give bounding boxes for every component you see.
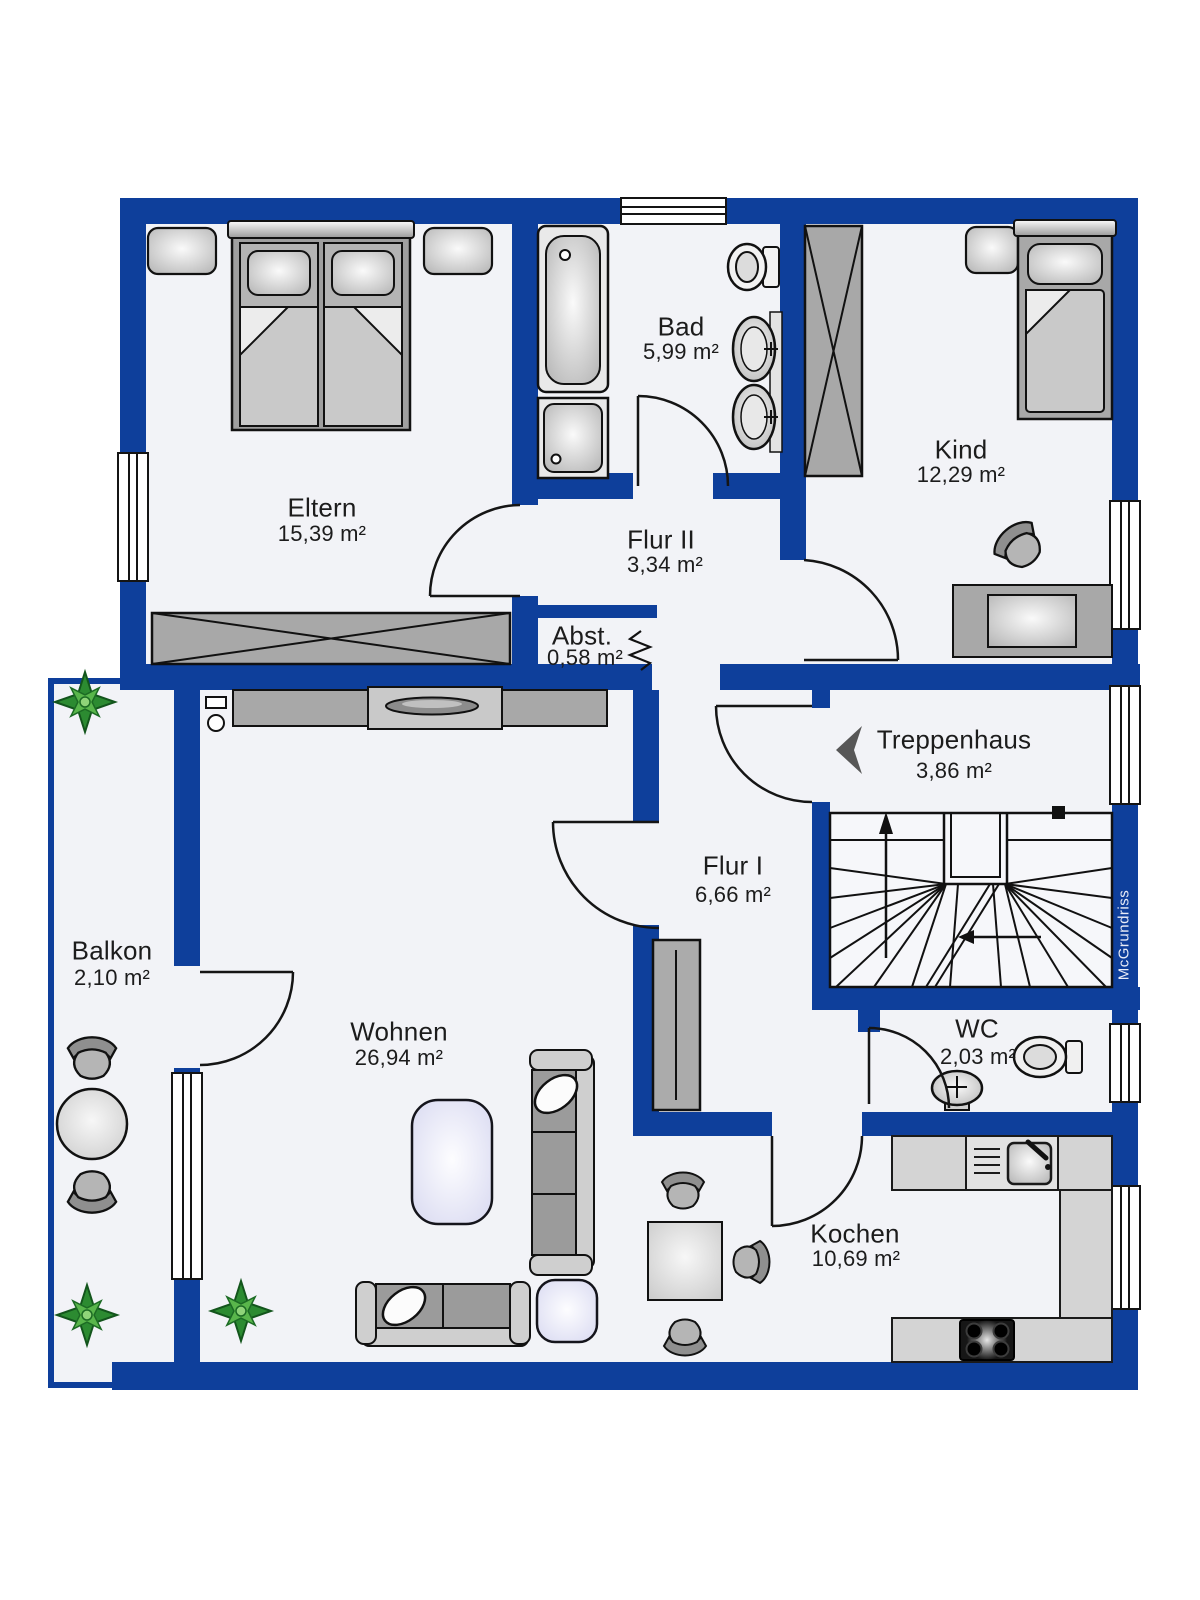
sideboard-tv-icon <box>206 687 607 731</box>
wc-sink-icon <box>932 1071 982 1110</box>
single-bed-icon <box>1014 220 1116 419</box>
sofa-horizontal-icon <box>356 1279 530 1346</box>
wardrobe-kind-icon <box>805 226 862 476</box>
desk-icon <box>953 585 1112 657</box>
staircase-icon <box>830 806 1112 987</box>
nightstand-icon <box>966 227 1018 273</box>
room-label-kind-name: Kind <box>935 435 988 466</box>
door-eltern <box>430 505 520 596</box>
plant-icon <box>57 1285 117 1345</box>
wardrobe-eltern-icon <box>152 613 510 664</box>
toilet-wc-icon <box>1014 1037 1082 1077</box>
plant-icon <box>55 672 115 732</box>
balcony-chair-icon <box>68 1037 116 1078</box>
balcony-chair-icon <box>68 1171 116 1212</box>
coffee-table-icon <box>412 1100 492 1224</box>
room-label-balkon-area: 2,10 m² <box>74 965 150 991</box>
room-label-flur2-name: Flur II <box>627 525 695 556</box>
door-wohnen <box>553 822 659 928</box>
room-label-kind-area: 12,29 m² <box>917 462 1005 488</box>
kitchen-table-icon <box>648 1222 722 1300</box>
accordion-door-icon <box>630 631 650 670</box>
room-label-kochen-area: 10,69 m² <box>812 1246 900 1272</box>
kitchen-chair-icon <box>662 1173 704 1209</box>
double-washbasin-icon <box>733 312 782 452</box>
room-label-wc-name: WC <box>955 1014 999 1045</box>
desk-chair-icon <box>988 515 1052 578</box>
door-kochen <box>772 1136 862 1226</box>
entry-arrow-icon <box>836 726 862 774</box>
room-label-wohnen-name: Wohnen <box>350 1017 448 1048</box>
balcony-table-icon <box>57 1089 127 1159</box>
pouf-icon <box>537 1280 597 1342</box>
room-label-eltern-area: 15,39 m² <box>278 521 366 547</box>
bathtub-icon <box>538 226 608 392</box>
room-label-eltern-name: Eltern <box>287 493 356 524</box>
double-bed-icon <box>228 221 414 430</box>
furniture-layer <box>0 0 1200 1600</box>
room-label-treppenhaus-name: Treppenhaus <box>877 725 1031 756</box>
door-balkon <box>200 972 293 1065</box>
room-label-kochen-name: Kochen <box>810 1219 899 1250</box>
kitchen-chair-icon <box>664 1320 706 1356</box>
room-label-abst-area: 0,58 m² <box>547 645 623 671</box>
room-label-wohnen-area: 26,94 m² <box>355 1045 443 1071</box>
door-entry <box>716 706 812 802</box>
room-label-balkon-name: Balkon <box>72 936 153 967</box>
room-label-treppenhaus-area: 3,86 m² <box>916 758 992 784</box>
nightstand-icon <box>424 228 492 274</box>
plant-icon <box>211 1281 271 1341</box>
room-label-flur1-name: Flur I <box>703 851 763 882</box>
kitchen-chair-icon <box>734 1241 770 1283</box>
floor-plan: Eltern 15,39 m² Bad 5,99 m² Kind 12,29 m… <box>0 0 1200 1600</box>
room-label-flur2-area: 3,34 m² <box>627 552 703 578</box>
door-bad <box>638 396 728 486</box>
nightstand-icon <box>148 228 216 274</box>
sofa-vertical-icon <box>528 1050 594 1275</box>
watermark-text: McGrundriss <box>1116 890 1133 981</box>
door-kind <box>804 560 898 660</box>
shower-icon <box>538 398 608 478</box>
room-label-flur1-area: 6,66 m² <box>695 882 771 908</box>
room-label-wc-area: 2,03 m² <box>940 1044 1016 1070</box>
stove-icon <box>960 1320 1014 1360</box>
room-label-bad-name: Bad <box>658 312 705 343</box>
room-label-bad-area: 5,99 m² <box>643 339 719 365</box>
toilet-bad-icon <box>728 244 779 290</box>
hall-cupboard-icon <box>653 940 700 1110</box>
